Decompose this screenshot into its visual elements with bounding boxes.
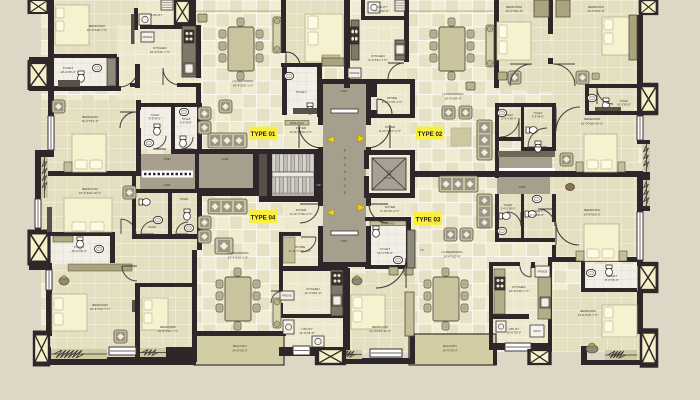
svg-text:FRIDGE: FRIDGE [350,71,360,75]
svg-text:16'-0"X16'-10 ½": 16'-0"X16'-10 ½" [581,122,603,126]
svg-text:16'-4"X20'-1 ½": 16'-4"X20'-1 ½" [233,84,254,88]
svg-text:11'-0"X12'-0": 11'-0"X12'-0" [304,291,321,295]
svg-text:14'-9"X5'-0": 14'-9"X5'-0" [232,349,248,353]
svg-text:TOILET: TOILET [503,203,512,207]
svg-text:6'-10 ½"X9'-4 ½": 6'-10 ½"X9'-4 ½" [290,130,312,134]
svg-text:9'-0"X12'-7 ½": 9'-0"X12'-7 ½" [369,58,388,62]
svg-text:LIVING/DINING: LIVING/DINING [441,250,463,254]
svg-text:WASH: WASH [533,330,540,333]
svg-text:TYPE 03: TYPE 03 [416,217,441,224]
svg-text:5'-5"X5'-5": 5'-5"X5'-5" [383,177,394,180]
svg-text:7'-0"X2'-0": 7'-0"X2'-0" [375,9,389,13]
svg-text:6'-10 ½"X6'-4 ½": 6'-10 ½"X6'-4 ½" [289,249,311,253]
svg-text:VOID: VOID [222,157,229,161]
svg-text:TYPE 04: TYPE 04 [251,215,276,222]
svg-text:16'-4"X10'-10 ½": 16'-4"X10'-10 ½" [79,191,101,195]
svg-text:6'-10 ½"X9'-4 ½": 6'-10 ½"X9'-4 ½" [290,212,312,216]
svg-text:TYPE 02: TYPE 02 [418,131,443,138]
svg-text:FRIDGE: FRIDGE [282,294,292,298]
svg-text:6'-10 ½"X7'-4 ½": 6'-10 ½"X7'-4 ½" [379,129,401,133]
svg-text:16'-0"X14'-0": 16'-0"X14'-0" [81,119,98,123]
svg-text:10'-6"X10'-7 ½": 10'-6"X10'-7 ½" [158,329,179,333]
svg-text:VOID: VOID [341,239,348,243]
svg-text:LIVING/DINING: LIVING/DINING [227,251,249,255]
svg-text:P: P [344,149,346,153]
svg-text:TOILET: TOILET [504,113,513,117]
svg-text:BALCONY: BALCONY [443,344,457,348]
svg-text:10'-9"X5'-6": 10'-9"X5'-6" [60,70,76,74]
svg-text:VOID: VOID [519,185,526,189]
svg-text:VOID: VOID [164,157,171,161]
svg-text:5'-0"X8'-0": 5'-0"X8'-0" [180,121,192,125]
svg-text:VOID: VOID [164,183,171,187]
svg-text:SHOE RACK: SHOE RACK [381,223,395,226]
svg-text:UTILITY: UTILITY [151,13,162,17]
svg-text:BEDROOM: BEDROOM [584,117,600,121]
svg-text:5'-3"X6'-0": 5'-3"X6'-0" [149,117,161,121]
svg-text:S: S [344,163,346,167]
svg-text:FRIDGE: FRIDGE [143,35,153,39]
svg-text:8'-0"X5'-0": 8'-0"X5'-0" [605,278,619,282]
svg-text:16'-4"X20'-0": 16'-4"X20'-0" [443,255,460,259]
svg-text:SHOE RACK: SHOE RACK [290,122,304,125]
svg-text:6'-10"X9'-4 ½": 6'-10"X9'-4 ½" [381,209,400,213]
svg-text:16'-4"X20'-1 ½": 16'-4"X20'-1 ½" [228,256,249,260]
svg-text:2'-4 ½"X8'-0": 2'-4 ½"X8'-0" [502,117,517,121]
svg-text:5'-3"X8'-0": 5'-3"X8'-0" [530,213,544,217]
svg-text:VOID: VOID [341,89,348,93]
svg-text:11'-0"X13'-11 ½": 11'-0"X13'-11 ½" [369,329,391,333]
svg-text:8'-0 ½"X5'-4 ½": 8'-0 ½"X5'-4 ½" [382,100,403,104]
svg-text:16'-4"X20'-0": 16'-4"X20'-0" [444,97,461,101]
svg-text:16'-6"X12'-7 ½": 16'-6"X12'-7 ½" [90,307,111,311]
svg-text:16'-6"X10'-7 ½": 16'-6"X10'-7 ½" [87,28,108,32]
svg-text:TOILET: TOILET [181,117,190,121]
svg-text:5'-3"X8'-0": 5'-3"X8'-0" [532,115,544,119]
svg-text:BALCONY: BALCONY [233,344,247,348]
svg-text:14'-0"X10'-0": 14'-0"X10'-0" [587,9,604,13]
svg-text:LIVING/DINING: LIVING/DINING [232,79,254,83]
svg-text:FRIDGE: FRIDGE [538,270,548,274]
svg-text:TOILET: TOILET [533,111,542,115]
svg-text:11'-0"X5'-6": 11'-0"X5'-6" [299,331,314,335]
svg-text:LIVING/DINING: LIVING/DINING [442,92,464,96]
svg-text:TV: TV [420,248,424,252]
svg-text:10'-0"X3'-0": 10'-0"X3'-0" [507,331,522,335]
svg-text:10'-9"X12'-7 ½": 10'-9"X12'-7 ½" [509,289,530,293]
svg-text:10'-0"X5'-0": 10'-0"X5'-0" [617,103,631,107]
svg-text:TOILET: TOILET [296,90,307,94]
svg-text:14'-0"X14'-0": 14'-0"X14'-0" [583,213,600,217]
svg-text:14'-0"X10'-0": 14'-0"X10'-0" [505,9,522,13]
svg-text:TOILET: TOILET [147,225,156,229]
svg-text:TOILET: TOILET [619,99,628,103]
svg-text:10'-9"X5'-6": 10'-9"X5'-6" [71,249,87,253]
svg-text:14'-6"X10'-7 ½": 14'-6"X10'-7 ½" [578,313,599,317]
svg-text:10'-9"X12'-7 ½": 10'-9"X12'-7 ½" [150,50,171,54]
svg-text:2'-4 ½"X8'-0": 2'-4 ½"X8'-0" [501,207,516,211]
svg-text:S: S [344,170,346,174]
svg-text:UP: UP [316,183,320,187]
svg-text:10 ½"X8'-0": 10 ½"X8'-0" [377,251,393,255]
svg-text:TOILET: TOILET [150,113,159,117]
svg-text:14'-9"X5'-0": 14'-9"X5'-0" [442,349,458,353]
svg-text:TYPE 01: TYPE 01 [251,131,276,138]
svg-text:BEDROOM: BEDROOM [584,208,600,212]
svg-text:E: E [344,191,346,195]
svg-text:TOILET: TOILET [179,197,188,201]
